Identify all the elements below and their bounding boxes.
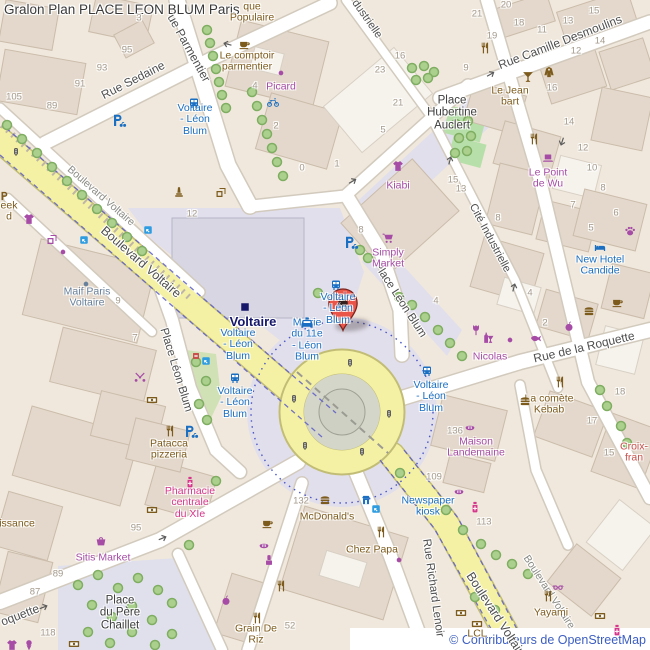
poi-label-line: kiosk <box>401 507 454 518</box>
house-number: 14 <box>564 117 575 128</box>
page-title: Gralon Plan PLACE LEON BLUM Paris <box>4 2 240 17</box>
cocktail-icon <box>522 71 535 84</box>
redbadge-icon <box>192 352 200 360</box>
poi-label-line: Place <box>100 594 140 606</box>
entrance-icon <box>144 226 153 235</box>
poi-label-line: Auclert <box>427 119 477 131</box>
house-number: 15 <box>589 6 600 17</box>
poi-label-line: Riz <box>235 635 277 646</box>
poi-label-line: fran <box>620 453 648 464</box>
traffic-light-icon <box>290 395 299 404</box>
house-number: 89 <box>53 569 64 580</box>
house-number: 18 <box>615 387 626 398</box>
poi-picard: Picard <box>266 81 296 92</box>
bread-icon <box>258 539 271 552</box>
poi-issance: issance <box>0 518 35 529</box>
basket-icon <box>95 535 108 548</box>
poi-banque-populaire: quePopulaire <box>230 2 274 25</box>
poi-simply-market: SimplyMarket <box>372 248 404 271</box>
frames-icon <box>46 234 58 246</box>
street-label-rue-sedaine: Rue Sedaine <box>99 58 167 102</box>
poi-label-line: d <box>1 212 18 223</box>
poi-label-line: Blum <box>177 126 212 137</box>
poi-yayami: Yayami <box>534 607 568 618</box>
house-number: 17 <box>587 416 598 427</box>
house-number: 1 <box>334 159 339 170</box>
house-number: 3 <box>136 13 141 24</box>
poi-le-point-de-wu: Le Pointde Wu <box>529 168 568 191</box>
house-number: 87 <box>30 587 41 598</box>
poi-label-line: Landemaine <box>447 448 505 459</box>
entrance-icon <box>80 236 89 245</box>
oneway-arrow-icon <box>507 280 520 293</box>
poi-la-comete-kebab: La comèteKebab <box>524 394 573 417</box>
scissors-icon <box>134 371 147 384</box>
monument-icon <box>173 186 185 198</box>
traffic-light-icon <box>358 448 367 457</box>
traffic-light-icon <box>301 442 310 451</box>
poi-label-line: - Léon <box>220 339 255 350</box>
poi-sitis-market: Sitis Market <box>76 552 131 563</box>
bus-icon <box>330 279 342 291</box>
house-number: 7 <box>132 333 137 344</box>
money-icon <box>146 394 159 407</box>
poi-label-line: Chez Papa <box>346 544 398 555</box>
burger-icon <box>519 395 532 408</box>
house-number: 12 <box>571 46 582 57</box>
poi-label-line: Yayami <box>534 607 568 618</box>
poi-maif-paris-voltaire: Maif ParisVoltaire <box>64 287 111 310</box>
coffee-icon <box>239 38 252 51</box>
house-number: 93 <box>97 63 108 74</box>
house-number: 9 <box>115 296 120 307</box>
bike-icon <box>266 95 280 109</box>
poi-label-line: du XIe <box>165 509 215 520</box>
map-canvas[interactable]: Gralon Plan PLACE LEON BLUM Paris © Cont… <box>0 0 650 650</box>
wine-icon <box>482 332 495 345</box>
traffic-light-icon <box>346 359 355 368</box>
house-number: 15 <box>604 448 615 459</box>
poi-label-line: - Léon <box>413 391 448 402</box>
bus-icon <box>421 365 433 377</box>
house-number: 0 <box>299 163 304 174</box>
house-number: 7 <box>570 200 575 211</box>
house-number: 109 <box>426 472 442 483</box>
poi-maison-landemaine: MaisonLandemaine <box>447 437 505 460</box>
house-number: 16 <box>547 83 558 94</box>
poi-label-line: McDonald's <box>300 511 355 522</box>
oneway-arrow-icon <box>156 531 170 545</box>
house-number: 23 <box>375 65 386 76</box>
house-number: 91 <box>75 79 86 90</box>
poi-label-line: pizzeria <box>150 450 188 461</box>
house-number: 10 <box>587 163 598 174</box>
poi-kiabi: Kiabi <box>386 180 409 191</box>
street-label-place-l-on-blum: Place Léon Blum <box>371 260 428 339</box>
taxi-icon <box>300 316 315 331</box>
cosmetic-icon <box>263 554 276 567</box>
coffee-icon <box>612 296 625 309</box>
street-label-rue-richard-lenoir: Rue Richard Lenoir <box>420 538 446 638</box>
poi-label-line: Picard <box>266 81 296 92</box>
coffee-icon <box>262 517 275 530</box>
poi-croix-rouge-francaise: Croix-fran <box>620 442 648 465</box>
house-number: 21 <box>472 9 483 20</box>
poi-label-line: - Léon <box>217 397 252 408</box>
cart-icon <box>382 232 395 245</box>
house-number: 105 <box>6 92 22 103</box>
fork-icon <box>164 425 177 438</box>
pharmacy-icon <box>469 501 482 514</box>
house-number: 20 <box>501 0 512 11</box>
poi-label-line: Blum <box>220 351 255 362</box>
house-number: 19 <box>487 31 498 42</box>
dot-icon <box>82 280 90 288</box>
house-number: 11 <box>537 25 547 36</box>
icecream-icon <box>23 639 36 650</box>
poi-bus-stop-voltaire-leon-blum-3: Voltaire- LéonBlum <box>217 386 252 420</box>
pletter-icon <box>0 191 9 201</box>
house-number: 132 <box>293 496 309 507</box>
house-number: 95 <box>122 45 133 56</box>
street-label-boulevard-voltaire: Boulevard Voltaire <box>65 164 137 229</box>
parkbike-icon <box>112 114 127 129</box>
poi-label-line: Blum <box>291 351 322 362</box>
poi-label-line: Kiabi <box>386 180 409 191</box>
house-number: 4 <box>527 288 532 299</box>
bread-icon <box>464 421 477 434</box>
parkbike-icon <box>184 425 199 440</box>
entrance-icon <box>202 357 211 366</box>
house-number: 14 <box>595 36 606 47</box>
map-overlay: Gralon Plan PLACE LEON BLUM Paris © Cont… <box>0 0 650 650</box>
fish-icon <box>530 332 543 345</box>
poi-label-line: - Léon <box>177 114 212 125</box>
house-number: 4 <box>252 81 257 92</box>
street-label-place-l-on-blum: Place Léon Blum <box>158 327 195 414</box>
bus-icon <box>229 372 241 384</box>
fork-icon <box>275 580 288 593</box>
house-number: 8 <box>600 183 605 194</box>
flower-icon <box>470 324 483 337</box>
house-number: 12 <box>187 209 198 220</box>
poi-label-line: bart <box>491 97 528 108</box>
metro-icon <box>241 303 250 312</box>
poi-label-line: - Léon <box>320 303 355 314</box>
money-icon <box>146 504 159 517</box>
poi-label-line: Kebab <box>524 405 573 416</box>
poi-label-line: issance <box>0 518 35 529</box>
bed-icon <box>594 242 607 255</box>
bus-icon <box>188 97 200 109</box>
apple-icon <box>563 320 576 333</box>
poi-label-line: Sitis Market <box>76 552 131 563</box>
street-label-rue-de-la-roquette: Rue de la Roquette <box>532 329 636 366</box>
street-label-dustrielle: dustrielle <box>349 0 384 40</box>
laptop-icon <box>542 152 555 165</box>
house-number: 8 <box>495 213 500 224</box>
fork-icon <box>375 526 388 539</box>
dot-icon <box>277 69 285 77</box>
poi-label-line: Blum <box>217 409 252 420</box>
house-number: 113 <box>476 517 491 528</box>
shirt-icon <box>6 639 19 650</box>
apple-icon <box>220 594 233 607</box>
money-icon <box>471 618 484 631</box>
house-number: 5 <box>588 223 593 234</box>
house-number: 18 <box>514 18 525 29</box>
dot-icon <box>395 556 403 564</box>
fork-icon <box>251 612 264 625</box>
poi-place-hubertine-auclert: PlaceHubertineAuclert <box>427 94 477 131</box>
poi-nicolas: Nicolas <box>473 351 507 362</box>
house-number: 4 <box>433 296 438 307</box>
pharmacy-icon <box>184 476 197 489</box>
house-number: 8 <box>358 225 363 236</box>
traffic-light-icon <box>12 148 21 157</box>
poi-label-line: centrale <box>165 497 215 508</box>
poi-label-line: Nicolas <box>473 351 507 362</box>
poi-label-line: du Père <box>100 607 140 619</box>
poi-label-line: Voltaire <box>64 298 111 309</box>
house-number: 52 <box>285 621 296 632</box>
dot-icon <box>59 248 67 256</box>
house-number: 12 <box>578 143 589 154</box>
traffic-light-icon <box>385 410 394 419</box>
poi-label-line: Blum <box>413 403 448 414</box>
poi-chez-papa: Chez Papa <box>346 544 398 555</box>
oneway-arrow-icon <box>345 173 360 188</box>
poi-le-jean-bart: Le Jeanbart <box>491 86 528 109</box>
fork-icon <box>479 42 492 55</box>
poi-eek-d: eekd <box>1 201 18 224</box>
street-label-cit-industrielle: Cité Industrielle <box>467 202 513 275</box>
house-number: 2 <box>273 121 278 132</box>
oneway-arrow-icon <box>443 153 456 166</box>
house-number: 89 <box>47 101 58 112</box>
poi-bus-stop-voltaire-leon-blum-2: Voltaire- LéonBlum <box>220 328 255 362</box>
street-label-ue-parmentier: ue Parmentier <box>165 12 214 85</box>
house-number: 13 <box>563 16 574 27</box>
house-number: 5 <box>380 125 385 136</box>
poi-newspaper-kiosk: Newspaperkiosk <box>401 496 454 519</box>
kiosk-icon <box>361 495 372 506</box>
dot-icon <box>506 336 514 344</box>
parkbike-icon <box>344 236 359 251</box>
house-number: 21 <box>393 98 404 109</box>
house-number: 16 <box>395 51 406 62</box>
poi-label-line: de Wu <box>529 179 568 190</box>
poi-label-line: Place <box>427 94 477 106</box>
house-number: 9 <box>463 63 468 74</box>
frames-icon <box>215 187 227 199</box>
poi-grain-de-riz: Grain DeRiz <box>235 624 277 647</box>
poi-label-line: Candide <box>576 266 624 277</box>
oneway-arrow-icon <box>555 135 569 149</box>
bread-icon <box>453 485 466 498</box>
poi-label-line: Blum <box>320 315 355 326</box>
glasses-icon <box>552 581 565 594</box>
poi-label-line: Hubertine <box>427 107 477 119</box>
shirt-icon <box>392 160 405 173</box>
fork-icon <box>528 133 541 146</box>
house-number: 13 <box>456 184 467 195</box>
money-icon <box>594 610 607 623</box>
fork-icon <box>554 376 567 389</box>
poi-new-hotel-candide: New HotelCandide <box>576 255 624 278</box>
poi-pharmacie-centrale-du-xie: Pharmaciecentraledu XIe <box>165 486 215 520</box>
poi-bus-stop-voltaire-leon-blum-5: Voltaire- LéonBlum <box>413 380 448 414</box>
poi-place-du-pere-chaillet: Placedu PèreChaillet <box>100 594 140 631</box>
poi-mcdonalds: McDonald's <box>300 511 355 522</box>
burger-icon <box>319 494 332 507</box>
poi-patacca-pizzeria: Pataccapizzeria <box>150 439 188 462</box>
suit-icon <box>543 66 556 79</box>
street-label-boulevard-voltaire: Boulevard Voltaire <box>98 223 184 300</box>
money-icon <box>455 607 468 620</box>
pharmacy-icon <box>611 624 624 637</box>
burger-icon <box>583 305 596 318</box>
poi-label-line: Market <box>372 259 404 270</box>
paw-icon <box>624 225 637 238</box>
entrance-icon <box>372 505 381 514</box>
poi-label-line: Populaire <box>230 13 274 24</box>
poi-label-line: Chaillet <box>100 619 140 631</box>
poi-label-line: parmentier <box>220 62 275 73</box>
house-number: 118 <box>40 628 55 639</box>
house-number: 95 <box>131 523 142 534</box>
poi-bus-stop-voltaire-leon-blum-4: Voltaire- LéonBlum <box>320 292 355 326</box>
shirt-icon <box>23 213 36 226</box>
house-number: 6 <box>613 208 618 219</box>
house-number: 2 <box>542 318 547 329</box>
oneway-arrow-icon <box>483 66 498 81</box>
money-icon <box>68 638 81 650</box>
poi-le-comptoir-parmentier: Le comptoirparmentier <box>220 51 275 74</box>
street-label-oquette: oquette <box>0 601 41 628</box>
